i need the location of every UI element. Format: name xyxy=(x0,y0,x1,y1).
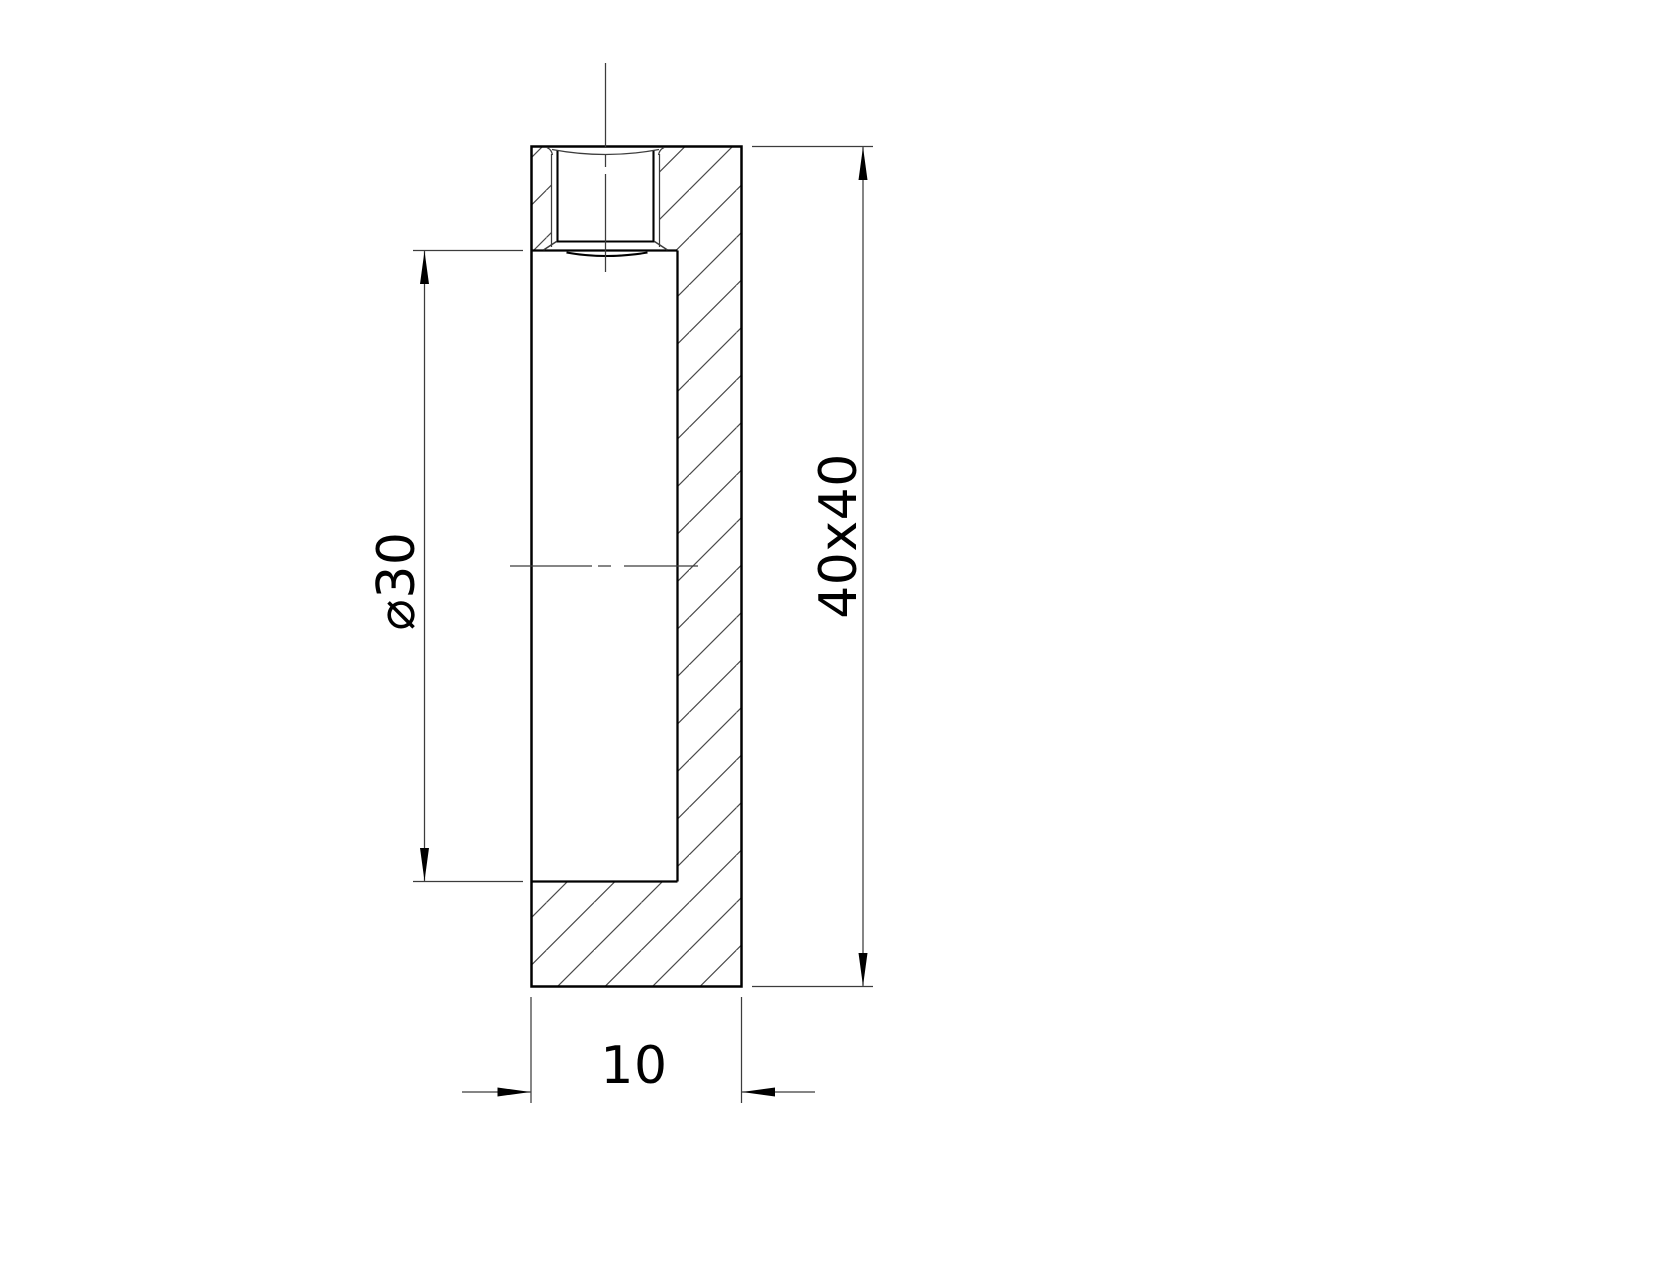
drawing-sheet: ⌀30 40x40 10 xyxy=(0,0,1680,1261)
dimension-bore-diameter: ⌀30 xyxy=(367,251,523,882)
arrowhead-down-icon xyxy=(420,848,429,881)
bore-diameter-label: ⌀30 xyxy=(367,532,427,631)
arrowhead-up-icon xyxy=(420,251,429,284)
thread-mouth-far-edge-arc xyxy=(552,150,659,155)
dimension-profile: 40x40 xyxy=(752,147,873,987)
thickness-label: 10 xyxy=(600,1036,667,1096)
engineering-drawing: ⌀30 40x40 10 xyxy=(0,0,1680,1261)
arrowhead-right-icon xyxy=(498,1088,531,1097)
thread-bore-intersection-arc xyxy=(567,253,648,257)
arrowhead-down-icon xyxy=(859,953,868,986)
arrowhead-left-icon xyxy=(742,1088,775,1097)
part-section-view xyxy=(510,63,742,987)
dimension-thickness: 10 xyxy=(462,997,815,1103)
arrowhead-up-icon xyxy=(859,147,868,180)
profile-label: 40x40 xyxy=(809,453,869,619)
